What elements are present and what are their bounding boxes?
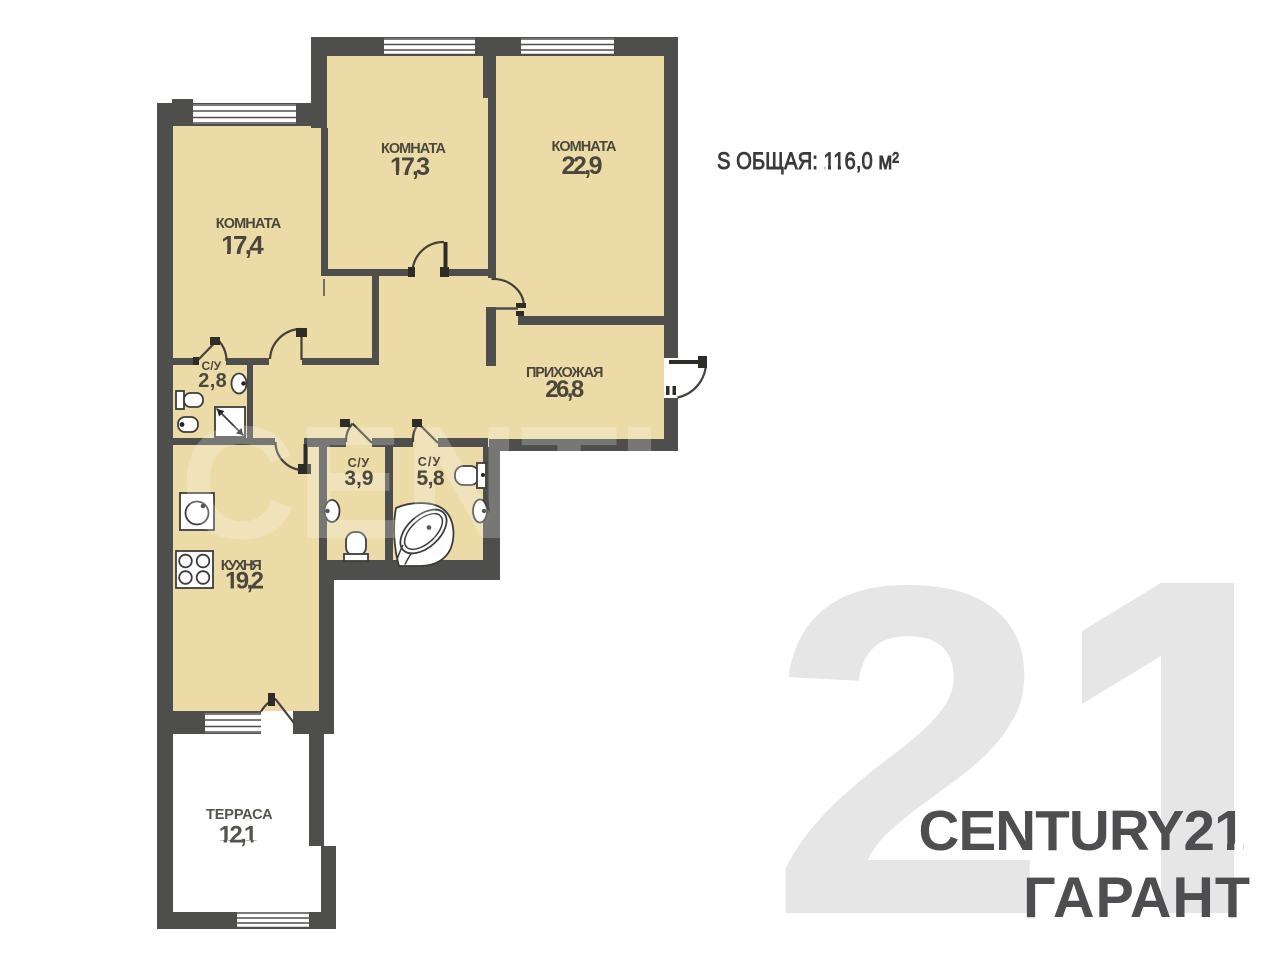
svg-text:S ОБЩАЯ: 116,0 м²: S ОБЩАЯ: 116,0 м² [717,148,899,175]
svg-text:ГАРАНТ: ГАРАНТ [1023,866,1250,930]
svg-text:CENTURY21: CENTURY21 [180,393,1131,573]
svg-text:5,8: 5,8 [417,467,445,490]
svg-text:17,4: 17,4 [221,230,264,260]
svg-text:12,1: 12,1 [219,822,258,849]
svg-text:19,2: 19,2 [225,568,264,595]
svg-text:CENTURY21: CENTURY21 [919,799,1246,862]
svg-text:22,9: 22,9 [562,152,603,180]
svg-text:17,3: 17,3 [390,153,430,181]
svg-text:2,8: 2,8 [198,370,227,392]
svg-text:26,8: 26,8 [545,376,584,403]
svg-text:3,9: 3,9 [344,467,373,490]
